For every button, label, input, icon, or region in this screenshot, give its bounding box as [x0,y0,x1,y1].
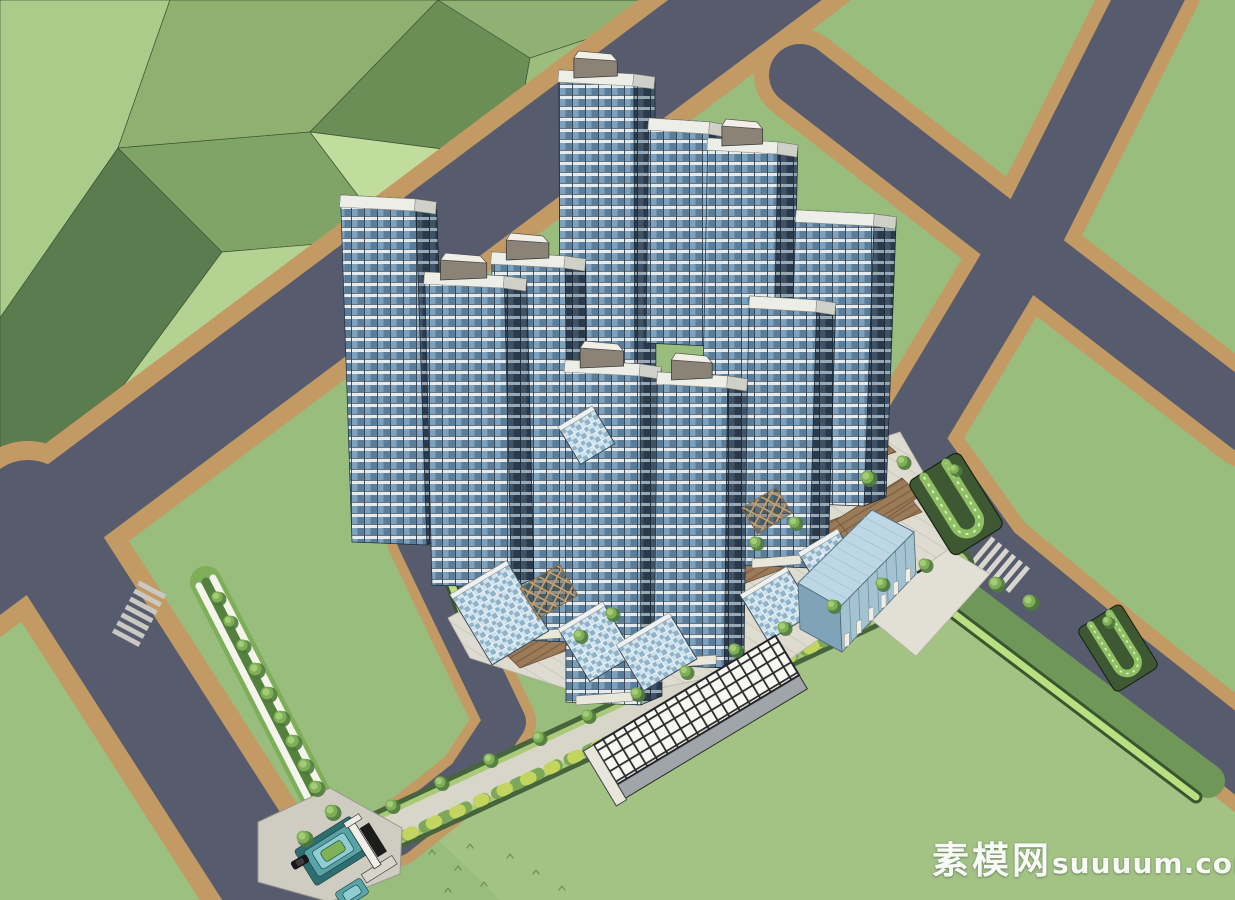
watermark: 素模网suuuum.com [932,830,1235,884]
tower [424,253,534,588]
white-column [857,620,862,635]
watermark-latin-text: suuuum.com [1052,847,1235,880]
rooftop-penthouse [574,58,617,78]
white-column [844,632,849,647]
tower-front-facade [646,118,710,346]
rooftop-penthouse [441,260,487,280]
white-column [906,568,911,583]
white-column [893,581,898,596]
rooftop-penthouse [722,126,763,146]
architectural-site-plan-render [0,0,1235,900]
tower-front-facade [341,195,427,545]
white-column [869,607,874,622]
rooftop-penthouse [506,240,549,260]
tower-front-facade [425,272,512,588]
rooftop-penthouse [671,360,712,380]
watermark-cjk-text: 素模网 [932,830,1052,884]
rooftop-penthouse [580,348,623,368]
site-render-viewport: 素模网suuuum.com [0,0,1235,900]
white-column [881,594,886,609]
tower-side-facade [724,376,747,668]
